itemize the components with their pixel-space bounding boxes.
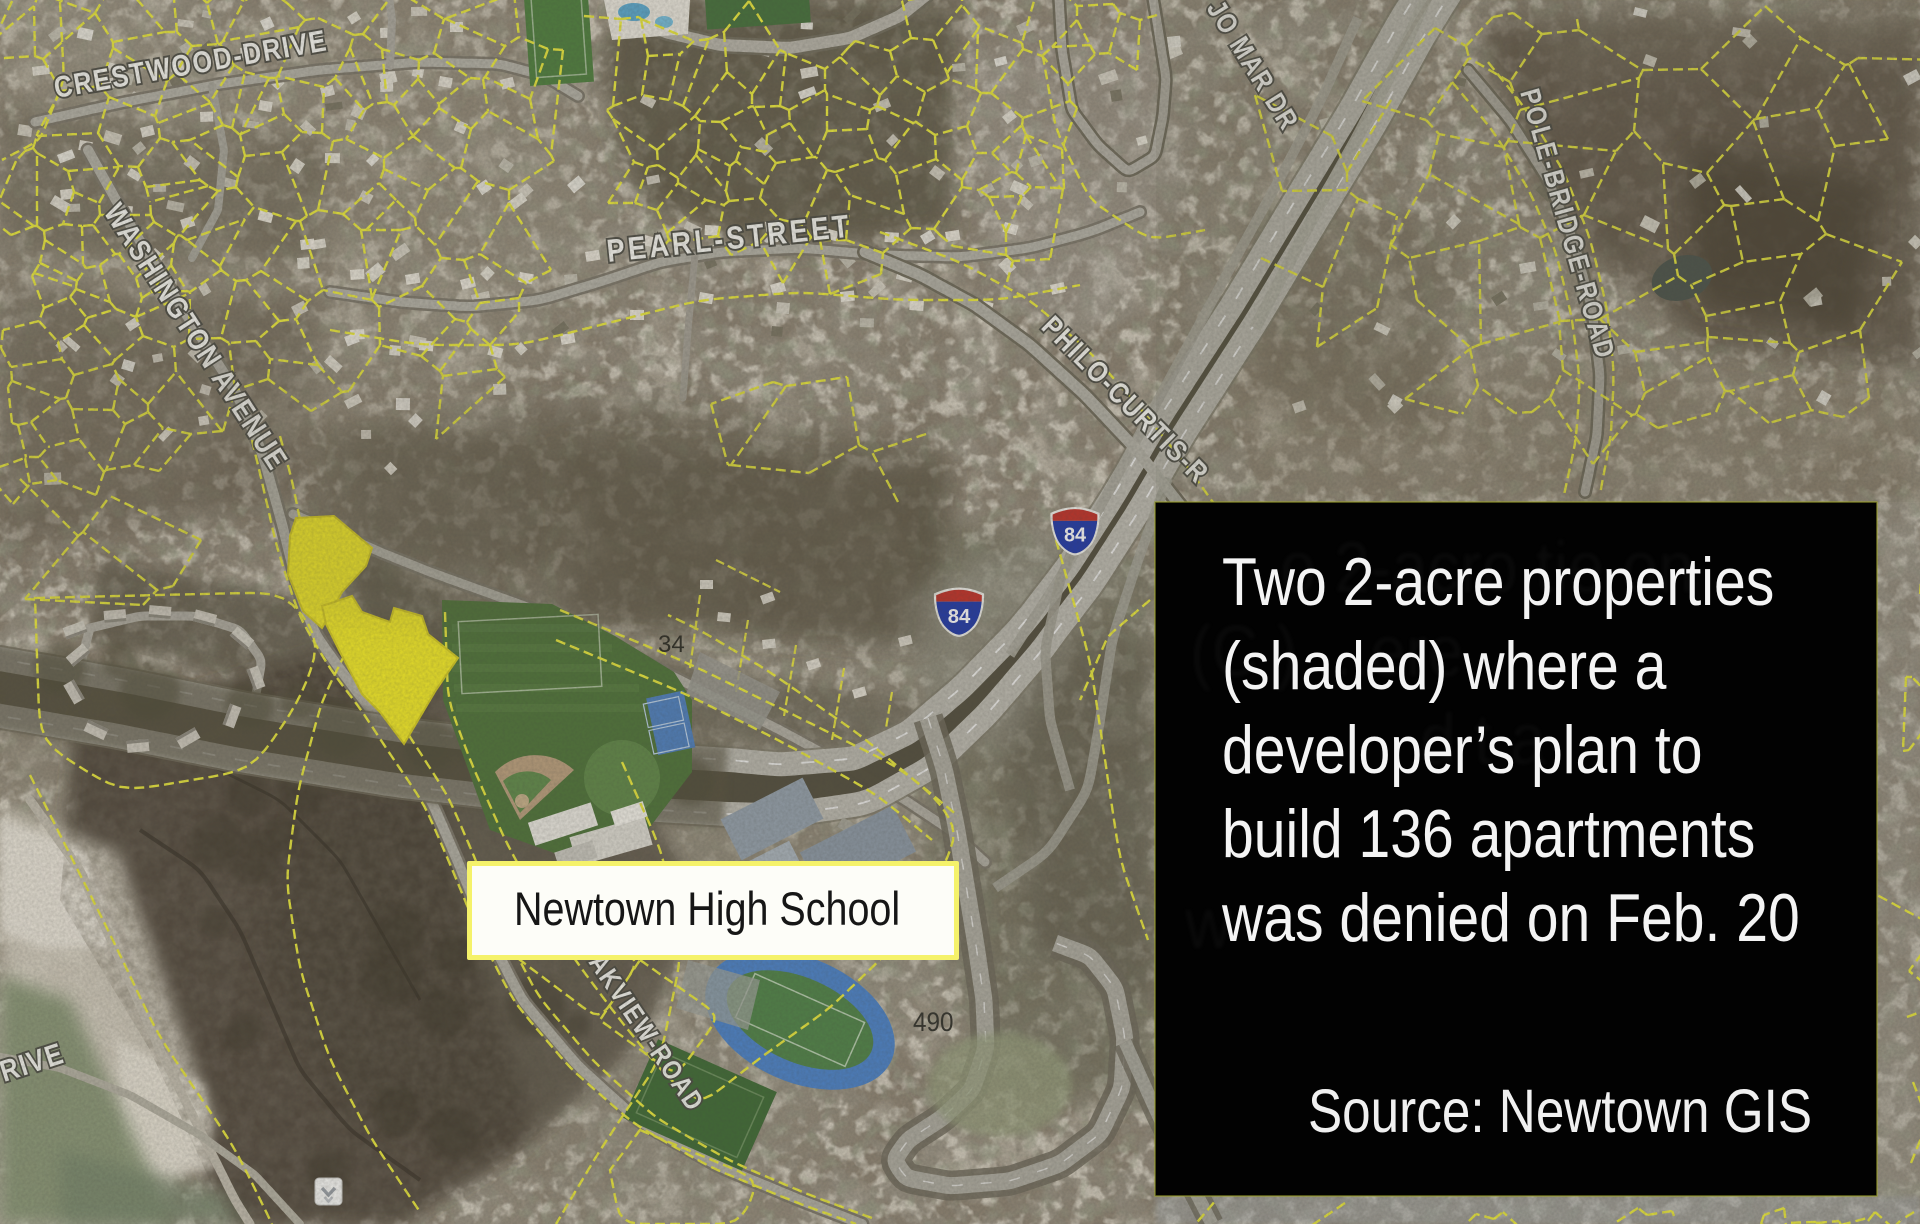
svg-text:Source: Newtown GIS: Source: Newtown GIS <box>1308 1077 1812 1145</box>
svg-text:(shaded) where a: (shaded) where a <box>1222 628 1666 704</box>
svg-text:developer’s plan to: developer’s plan to <box>1222 712 1702 788</box>
svg-text:Two 2-acre properties: Two 2-acre properties <box>1222 544 1774 620</box>
svg-text:was denied on Feb. 20: was denied on Feb. 20 <box>1221 880 1800 956</box>
svg-text:build 136 apartments: build 136 apartments <box>1222 796 1755 872</box>
svg-text:Newtown High School: Newtown High School <box>514 884 900 936</box>
